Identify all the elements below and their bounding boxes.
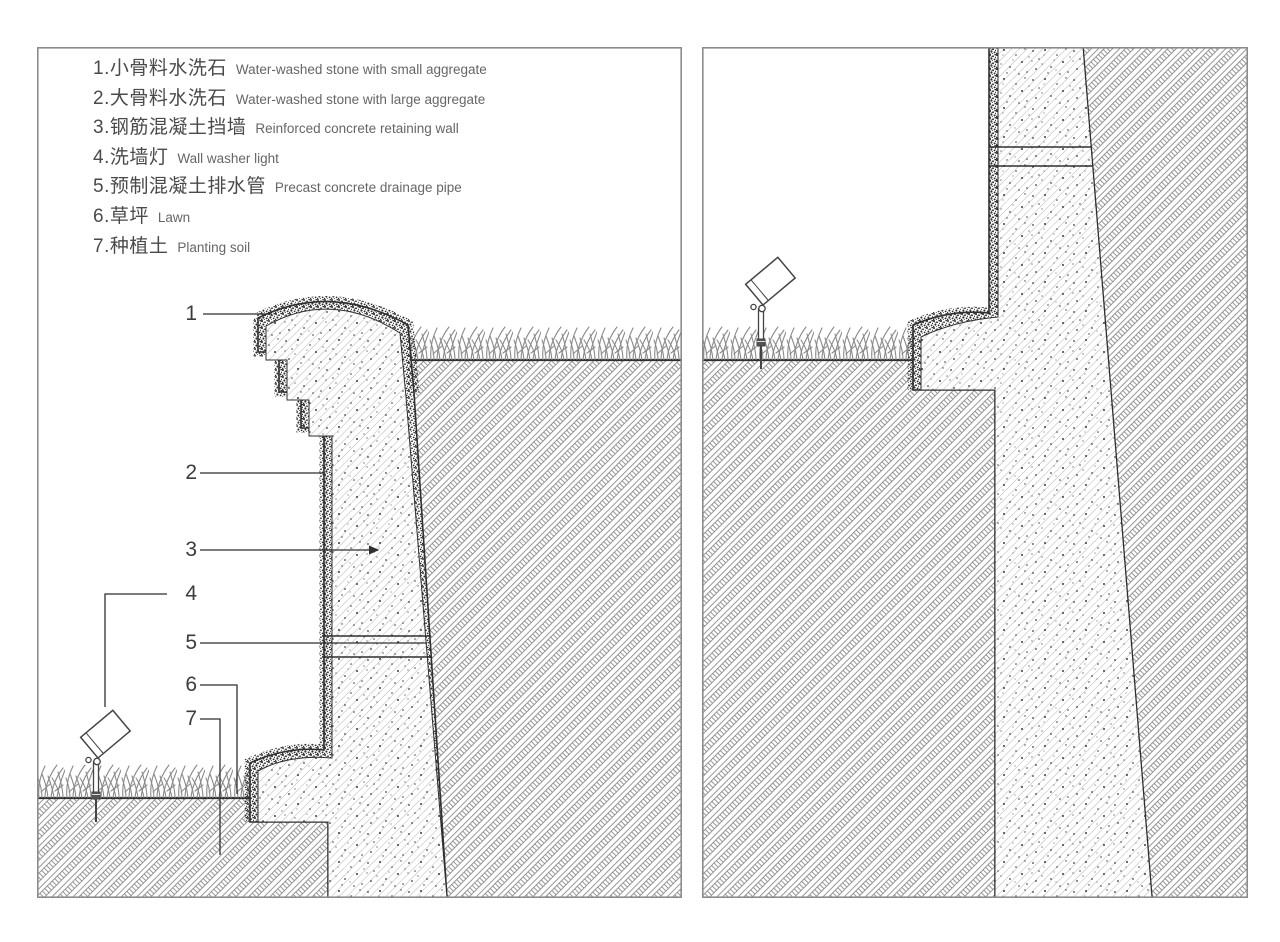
legend-item-en: Water-washed stone with small aggregate [236,62,487,77]
legend-item-zh: 洗墙灯 [110,147,169,168]
callout-label-6: 6 [170,674,197,696]
retaining-wall-detail-sheet: { "legend": { "items": [ {"no":"1.","zh"… [0,0,1280,942]
legend-item: 6.草坪Lawn [93,202,487,232]
upper-soil-hatch [411,360,682,898]
legend-item-number: 4. [93,147,110,168]
legend-item-zh: 种植土 [110,236,169,257]
legend-item-zh: 草坪 [110,206,149,227]
legend-item-en: Lawn [158,210,190,225]
legend-item-en: Wall washer light [177,151,279,166]
legend-item-zh: 大骨料水洗石 [110,88,227,109]
retaining-wall [250,302,447,898]
legend-item-number: 5. [93,176,110,197]
callout-label-7: 7 [170,708,197,730]
legend-item-number: 1. [93,58,110,79]
lawn-grass [702,322,913,360]
legend-item: 3.钢筋混凝土挡墙Reinforced concrete retaining w… [93,113,487,143]
legend-item-zh: 小骨料水洗石 [110,58,227,79]
legend-item: 5.预制混凝土排水管Precast concrete drainage pipe [93,172,487,202]
callout-label-4: 4 [170,583,197,605]
legend-item: 2.大骨料水洗石Water-washed stone with large ag… [93,84,487,114]
callout-label-3: 3 [170,539,197,561]
leader-4 [105,594,167,707]
lower-lawn-grass [37,760,250,798]
legend-item: 4.洗墙灯Wall washer light [93,143,487,173]
callout-label-5: 5 [170,632,197,654]
legend-item-en: Water-washed stone with large aggregate [236,92,485,107]
legend-item-number: 7. [93,236,110,257]
legend-item-zh: 预制混凝土排水管 [110,176,266,197]
legend-item: 1.小骨料水洗石Water-washed stone with small ag… [93,54,487,84]
legend-item-number: 6. [93,206,110,227]
legend-item-en: Reinforced concrete retaining wall [255,121,458,136]
callout-label-1: 1 [170,303,197,325]
legend-item-zh: 钢筋混凝土挡墙 [110,117,247,138]
legend-item-en: Planting soil [177,240,250,255]
callout-label-2: 2 [170,462,197,484]
legend: 1.小骨料水洗石Water-washed stone with small ag… [93,54,487,261]
right-section-drawing [702,47,1248,898]
legend-item-number: 2. [93,88,110,109]
legend-item-number: 3. [93,117,110,138]
legend-item: 7.种植土Planting soil [93,232,487,262]
lower-soil-hatch [702,360,995,898]
legend-item-en: Precast concrete drainage pipe [275,180,462,195]
upper-lawn-grass [411,322,682,360]
